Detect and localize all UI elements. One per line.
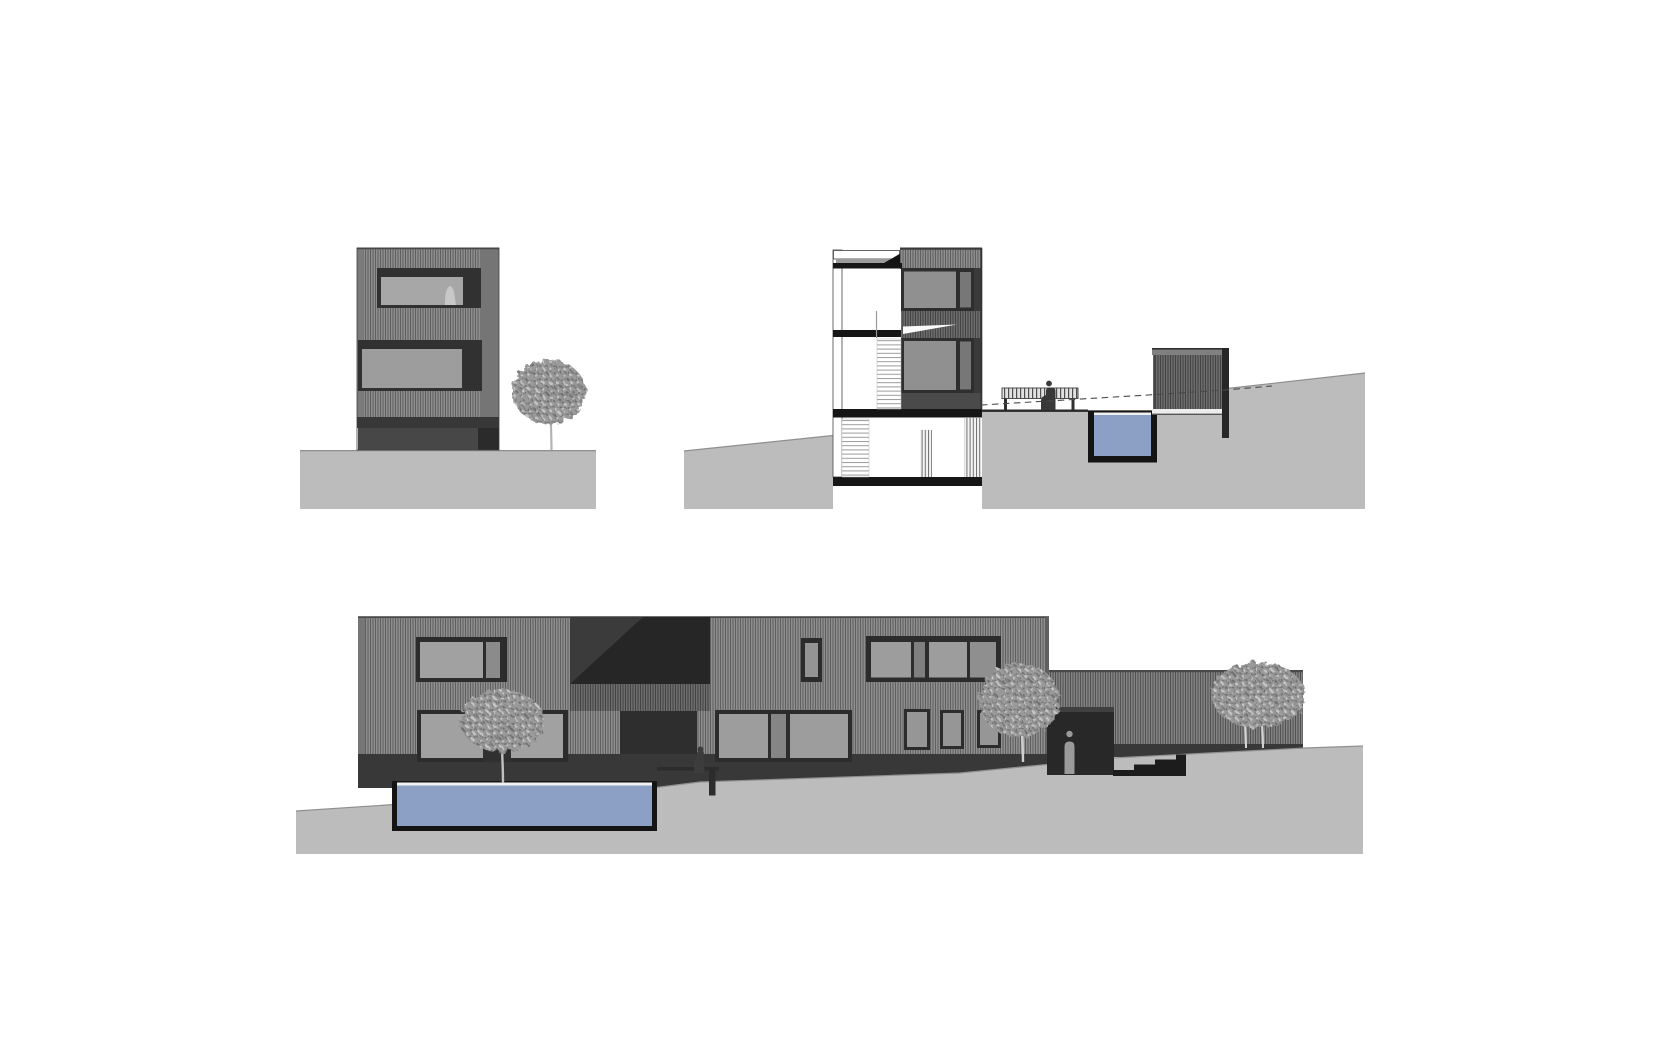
terrace-spandrel bbox=[901, 393, 982, 409]
tree-canopy bbox=[1211, 662, 1305, 728]
figure-head bbox=[1066, 731, 1072, 737]
stair-lower bbox=[842, 419, 869, 477]
window-pane bbox=[790, 714, 848, 758]
window-pane bbox=[914, 642, 925, 678]
window-pane bbox=[960, 342, 971, 390]
deck-post bbox=[709, 771, 716, 796]
floor-slab-mid bbox=[833, 330, 903, 337]
ground-b-left bbox=[684, 436, 833, 510]
pool-water bbox=[1094, 415, 1151, 456]
facade-band-a bbox=[357, 417, 499, 428]
facade-edge-line bbox=[981, 248, 983, 409]
floor-slab-terrace bbox=[833, 409, 982, 418]
drawing-sheet bbox=[0, 0, 1680, 1050]
cross-section-drawing bbox=[684, 248, 1365, 510]
tree-trunk bbox=[1022, 733, 1023, 762]
tree-foliage bbox=[460, 690, 544, 752]
outbuilding-retaining-wall bbox=[1222, 348, 1229, 438]
outbuilding-roof-edge bbox=[1152, 348, 1229, 350]
end-elevation-drawing bbox=[300, 248, 596, 510]
pool-water bbox=[397, 786, 652, 827]
roof-slab bbox=[833, 263, 902, 269]
window-pane bbox=[420, 642, 483, 678]
basement-glazing bbox=[964, 418, 982, 477]
parapet-cap bbox=[900, 248, 982, 250]
stair-balustrade bbox=[920, 430, 932, 477]
outbuilding-edge-left bbox=[1153, 355, 1155, 409]
pool-waterline bbox=[397, 783, 652, 786]
window-pane bbox=[771, 714, 786, 758]
tree-trunk bbox=[1245, 724, 1246, 748]
window-pane bbox=[805, 643, 818, 677]
tree-canopy bbox=[512, 360, 586, 424]
garden-elevation-drawing bbox=[296, 616, 1363, 854]
window-pane bbox=[719, 714, 768, 758]
window-pane bbox=[929, 642, 967, 678]
window-pane bbox=[970, 642, 996, 678]
bench-leg bbox=[1004, 399, 1007, 411]
stair-upper bbox=[877, 339, 901, 409]
cladding-corner-left bbox=[358, 617, 365, 757]
tree-foliage bbox=[512, 360, 586, 424]
base-plinth-a bbox=[358, 428, 478, 450]
tree-trunk bbox=[1262, 725, 1263, 748]
tree-foliage bbox=[1211, 662, 1305, 728]
outbuilding-cladding bbox=[1154, 355, 1222, 409]
spandrel-cladding bbox=[901, 311, 982, 338]
roof-parapet-cut bbox=[834, 251, 900, 260]
cladding-corner-left-a bbox=[357, 248, 363, 417]
window-pane bbox=[943, 713, 961, 746]
window-pane bbox=[362, 349, 462, 388]
tree-canopy bbox=[460, 690, 544, 752]
pool-waterline bbox=[1094, 413, 1151, 416]
base-plinth-corner-a bbox=[478, 428, 499, 450]
window-pane bbox=[486, 642, 500, 678]
window-pane bbox=[960, 272, 971, 308]
tree-trunk bbox=[502, 750, 503, 783]
drawing-canvas bbox=[0, 0, 1680, 1050]
outbuilding-base-slab bbox=[1152, 409, 1222, 414]
parapet-cladding bbox=[900, 248, 982, 269]
deck-edge bbox=[657, 767, 719, 771]
cut-wall-left bbox=[833, 250, 842, 477]
window-pane bbox=[871, 642, 911, 678]
tree-canopy bbox=[979, 663, 1059, 737]
bench-leg bbox=[1072, 399, 1075, 411]
figure-head bbox=[1046, 381, 1052, 387]
cladding-corner-right-a bbox=[480, 248, 499, 417]
bench bbox=[1002, 388, 1078, 399]
tree-foliage bbox=[979, 663, 1059, 737]
figure-body bbox=[1065, 742, 1075, 775]
recess-spandrel bbox=[570, 684, 710, 711]
floor-slab-bottom bbox=[833, 477, 982, 486]
window-pane bbox=[904, 272, 956, 309]
outbuilding-base-line bbox=[1152, 414, 1222, 415]
ground-a bbox=[300, 450, 596, 509]
window-pane bbox=[904, 341, 956, 390]
entrance-recess bbox=[1047, 707, 1114, 775]
window-pane bbox=[907, 712, 927, 747]
